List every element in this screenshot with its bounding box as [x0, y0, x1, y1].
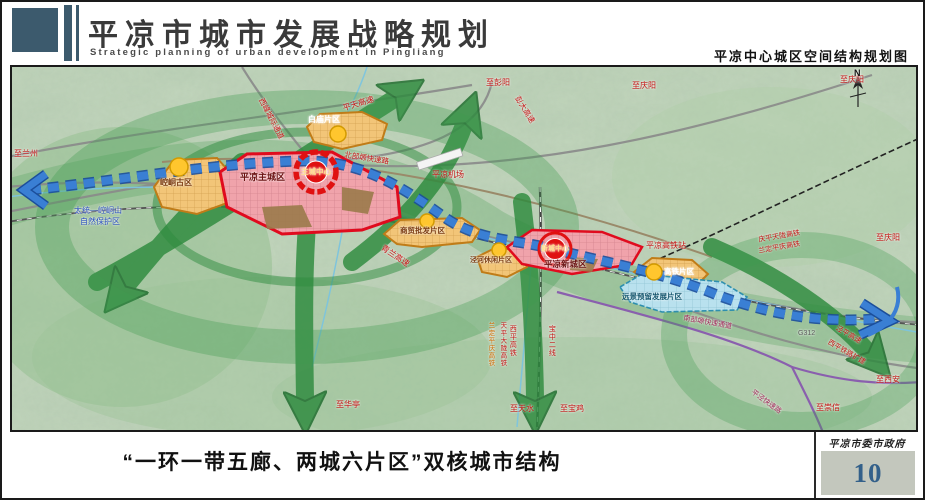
map-title: 平凉中心城区空间结构规划图	[714, 46, 909, 65]
planning-map: 至兰州西峰城际通道平天高速北部塬快速路平凉机场青兰高速白庙片区崆峒古区平凉主城区…	[10, 65, 918, 432]
page-subtitle: Strategic planning of urban development …	[90, 47, 446, 58]
footer: “一环一带五廊、两城六片区”双核城市结构 平凉市委市政府 10	[2, 432, 923, 500]
header-accent-bar	[64, 5, 72, 61]
header-accent-square	[12, 8, 58, 52]
agency-label: 平凉市委市政府	[816, 435, 918, 450]
structure-caption: “一环一带五廊、两城六片区”双核城市结构	[57, 446, 627, 476]
page-number-block: 平凉市委市政府 10	[814, 432, 918, 498]
map-artwork	[12, 67, 916, 430]
header-accent-bar-thin	[76, 5, 79, 61]
header: 平凉市城市发展战略规划 Strategic planning of urban …	[2, 2, 923, 65]
planning-page: 平凉市城市发展战略规划 Strategic planning of urban …	[0, 0, 925, 500]
page-number: 10	[854, 458, 883, 489]
page-number-box: 10	[821, 451, 915, 495]
